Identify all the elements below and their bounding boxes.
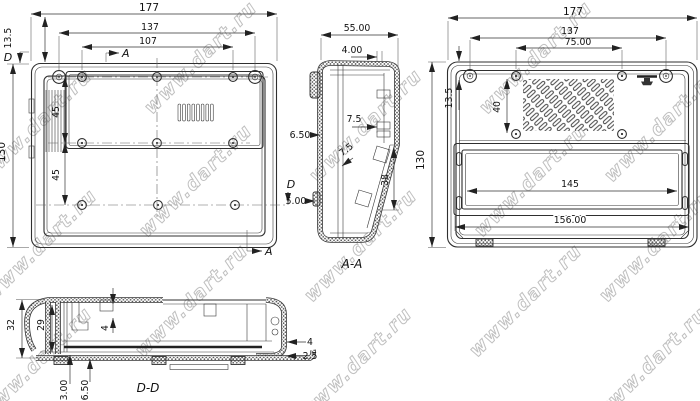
dim-wall1-section-aa: 6.50: [290, 130, 311, 141]
dim-rib-section-dd: 4: [100, 325, 111, 331]
dim-wall-section-dd: 3.00: [59, 380, 70, 401]
engineering-drawing-sheet: www.dart.ruwww.dart.ruwww.dart.ruwww.dar…: [0, 0, 700, 401]
dim-row2-top-view: 45: [51, 169, 62, 181]
dim-recess-outer-back-view: 156.00: [554, 215, 587, 226]
section-marker-d-right: D: [287, 178, 295, 191]
section-marker-a-top: A: [121, 47, 130, 60]
dim-rib-section-aa: 7.5: [347, 114, 362, 125]
vent-grille-back-view: [523, 79, 614, 131]
dim-height-top-view: 130: [0, 142, 8, 162]
dim-inner-height-section-dd: 29: [36, 319, 47, 331]
dim-edge-section-dd: 4: [307, 337, 313, 348]
enclosure-dimension-drawing: www.dart.ruwww.dart.ruwww.dart.ruwww.dar…: [0, 0, 700, 401]
dim-lip-section-dd: 2.5: [303, 351, 318, 362]
dim-vent-span-back-view: 75.00: [565, 37, 592, 48]
section-dd-title: D-D: [137, 381, 160, 395]
dim-top-offset-top-view: 13.5: [3, 28, 14, 49]
dim-recess-inner-back-view: 145: [561, 179, 579, 190]
dim-wall2-section-aa: 5.00: [286, 196, 307, 207]
section-marker-a-bottom: A: [264, 245, 273, 258]
dim-boss-section-dd: 6.50: [80, 380, 91, 401]
foot-section: [231, 357, 245, 365]
dim-height-section-dd: 32: [6, 319, 17, 331]
dim-vent-height-back-view: 40: [492, 101, 503, 113]
dim-slant-height-section-aa: 38: [380, 174, 391, 186]
dim-depth-section-aa: 55.00: [344, 23, 371, 34]
dim-inner-span-top-view: 107: [139, 36, 157, 47]
front-lip-section: [310, 72, 320, 98]
dim-row1-top-view: 45: [51, 106, 62, 118]
dim-top-offset-back-view: 13.5: [444, 88, 455, 109]
dim-width-top-view: 177: [139, 2, 159, 14]
section-aa-title: A-A: [341, 257, 363, 271]
dim-width-back-view: 177: [563, 6, 583, 18]
foot-section: [54, 357, 68, 365]
bottom-foot-tab: [648, 239, 665, 246]
dim-lip-section-aa: 4.00: [342, 45, 363, 56]
foot-section: [152, 357, 166, 365]
dim-hole-span-top-view: 137: [141, 22, 159, 33]
section-marker-d-left: D: [4, 51, 12, 64]
bottom-foot-tab: [476, 239, 493, 246]
wall-step-section: [313, 192, 320, 206]
dim-height-back-view: 130: [415, 150, 427, 170]
dim-hole-span-back-view: 137: [561, 26, 579, 37]
